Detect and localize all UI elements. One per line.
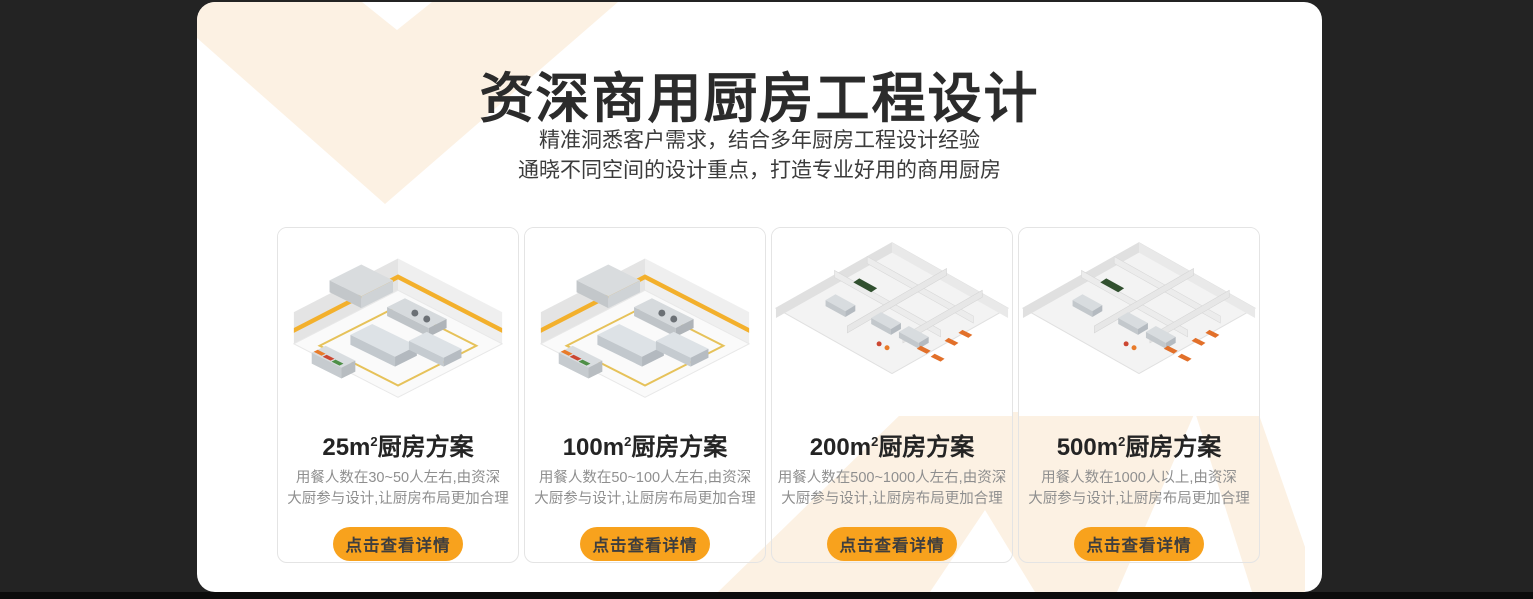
card-title: 25m2厨房方案	[322, 428, 473, 462]
card-title: 500m2厨房方案	[1057, 428, 1222, 462]
solution-card-500sqm: 500m2厨房方案 用餐人数在1000人以上,由资深 大厨参与设计,让厨房布局更…	[1018, 227, 1260, 563]
view-details-button[interactable]: 点击查看详情	[827, 527, 957, 561]
content-panel: 资深商用厨房工程设计 精准洞悉客户需求，结合多年厨房工程设计经验 通晓不同空间的…	[197, 2, 1322, 592]
subtitle-line-1: 精准洞悉客户需求，结合多年厨房工程设计经验	[197, 126, 1322, 156]
view-details-button[interactable]: 点击查看详情	[580, 527, 710, 561]
card-description: 用餐人数在30~50人左右,由资深 大厨参与设计,让厨房布局更加合理	[287, 468, 509, 510]
kitchen-render-image	[278, 228, 518, 416]
card-description: 用餐人数在500~1000人左右,由资深 大厨参与设计,让厨房布局更加合理	[778, 468, 1006, 510]
kitchen-render-image	[772, 228, 1012, 416]
page-subtitle: 精准洞悉客户需求，结合多年厨房工程设计经验 通晓不同空间的设计重点，打造专业好用…	[197, 126, 1322, 186]
view-details-button[interactable]: 点击查看详情	[1074, 527, 1204, 561]
solution-card-100sqm: 100m2厨房方案 用餐人数在50~100人左右,由资深 大厨参与设计,让厨房布…	[524, 227, 766, 563]
page-title: 资深商用厨房工程设计	[197, 54, 1322, 133]
solution-card-25sqm: 25m2厨房方案 用餐人数在30~50人左右,由资深 大厨参与设计,让厨房布局更…	[277, 227, 519, 563]
solution-card-row: 25m2厨房方案 用餐人数在30~50人左右,由资深 大厨参与设计,让厨房布局更…	[277, 227, 1260, 563]
kitchen-render-image	[525, 228, 765, 416]
kitchen-render-image	[1019, 228, 1259, 416]
subtitle-line-2: 通晓不同空间的设计重点，打造专业好用的商用厨房	[197, 156, 1322, 186]
bottom-divider-bar	[0, 592, 1533, 599]
solution-card-200sqm: 200m2厨房方案 用餐人数在500~1000人左右,由资深 大厨参与设计,让厨…	[771, 227, 1013, 563]
view-details-button[interactable]: 点击查看详情	[333, 527, 463, 561]
card-description: 用餐人数在50~100人左右,由资深 大厨参与设计,让厨房布局更加合理	[534, 468, 756, 510]
card-title: 100m2厨房方案	[563, 428, 728, 462]
card-title: 200m2厨房方案	[810, 428, 975, 462]
card-description: 用餐人数在1000人以上,由资深 大厨参与设计,让厨房布局更加合理	[1028, 468, 1250, 510]
